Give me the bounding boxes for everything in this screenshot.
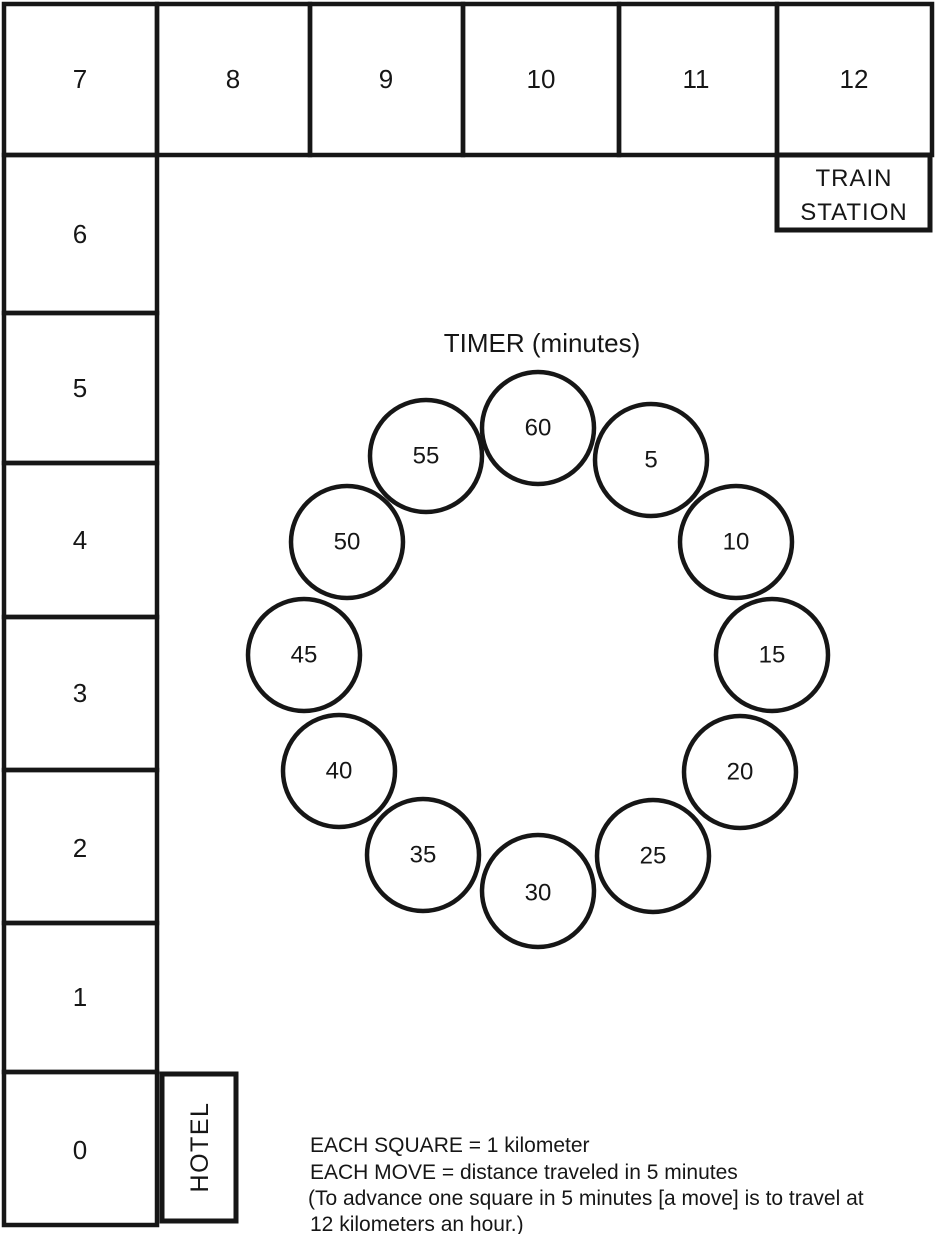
timer-circle-15-label: 15 [759, 642, 786, 669]
train-station-label-line1: TRAIN [816, 165, 893, 192]
board-square-5-label: 5 [73, 373, 87, 403]
timer-circle-45-label: 45 [291, 642, 318, 669]
legend-line-1: EACH SQUARE = 1 kilometer [310, 1134, 590, 1157]
timer-circle-10-label: 10 [723, 529, 750, 556]
board-square-10-label: 10 [527, 64, 556, 94]
timer-circle-5-label: 5 [644, 447, 657, 474]
board-square-6-label: 6 [73, 219, 87, 249]
board-square-11-label: 11 [683, 64, 710, 94]
timer-circle-20-label: 20 [727, 759, 754, 786]
timer-circle-25-label: 25 [640, 843, 667, 870]
timer-circle-40-label: 40 [326, 758, 353, 785]
board-square-1-label: 1 [73, 982, 87, 1012]
board-square-4-label: 4 [73, 525, 87, 555]
board-square-9-label: 9 [379, 64, 393, 94]
hotel-label: HOTEL [186, 1102, 214, 1193]
timer-circle-55-label: 55 [413, 443, 440, 470]
timer-circle-30-label: 30 [525, 880, 552, 907]
legend-line-2: EACH MOVE = distance traveled in 5 minut… [310, 1161, 738, 1184]
board-square-0-label: 0 [73, 1135, 87, 1165]
board-square-12-label: 12 [840, 64, 869, 94]
timer-circle-50-label: 50 [334, 529, 361, 556]
train-station-label-line2: STATION [800, 199, 907, 226]
board-square-2-label: 2 [73, 833, 87, 863]
board-square-8-label: 8 [226, 64, 240, 94]
board-square-7-label: 7 [73, 64, 87, 94]
legend-line-4: 12 kilometers an hour.) [310, 1213, 524, 1234]
board-figure-canvas: 7 8 9 10 11 12 6 5 4 3 2 1 0 TRAIN STATI… [0, 0, 936, 1234]
timer-circle-35-label: 35 [410, 842, 437, 869]
game-board-figure: 7 8 9 10 11 12 6 5 4 3 2 1 0 TRAIN STATI… [0, 0, 936, 1234]
legend-line-3: (To advance one square in 5 minutes [a m… [308, 1187, 864, 1210]
timer-circle-60-label: 60 [525, 415, 552, 442]
timer-title: TIMER (minutes) [444, 328, 640, 358]
board-square-3-label: 3 [73, 678, 87, 708]
